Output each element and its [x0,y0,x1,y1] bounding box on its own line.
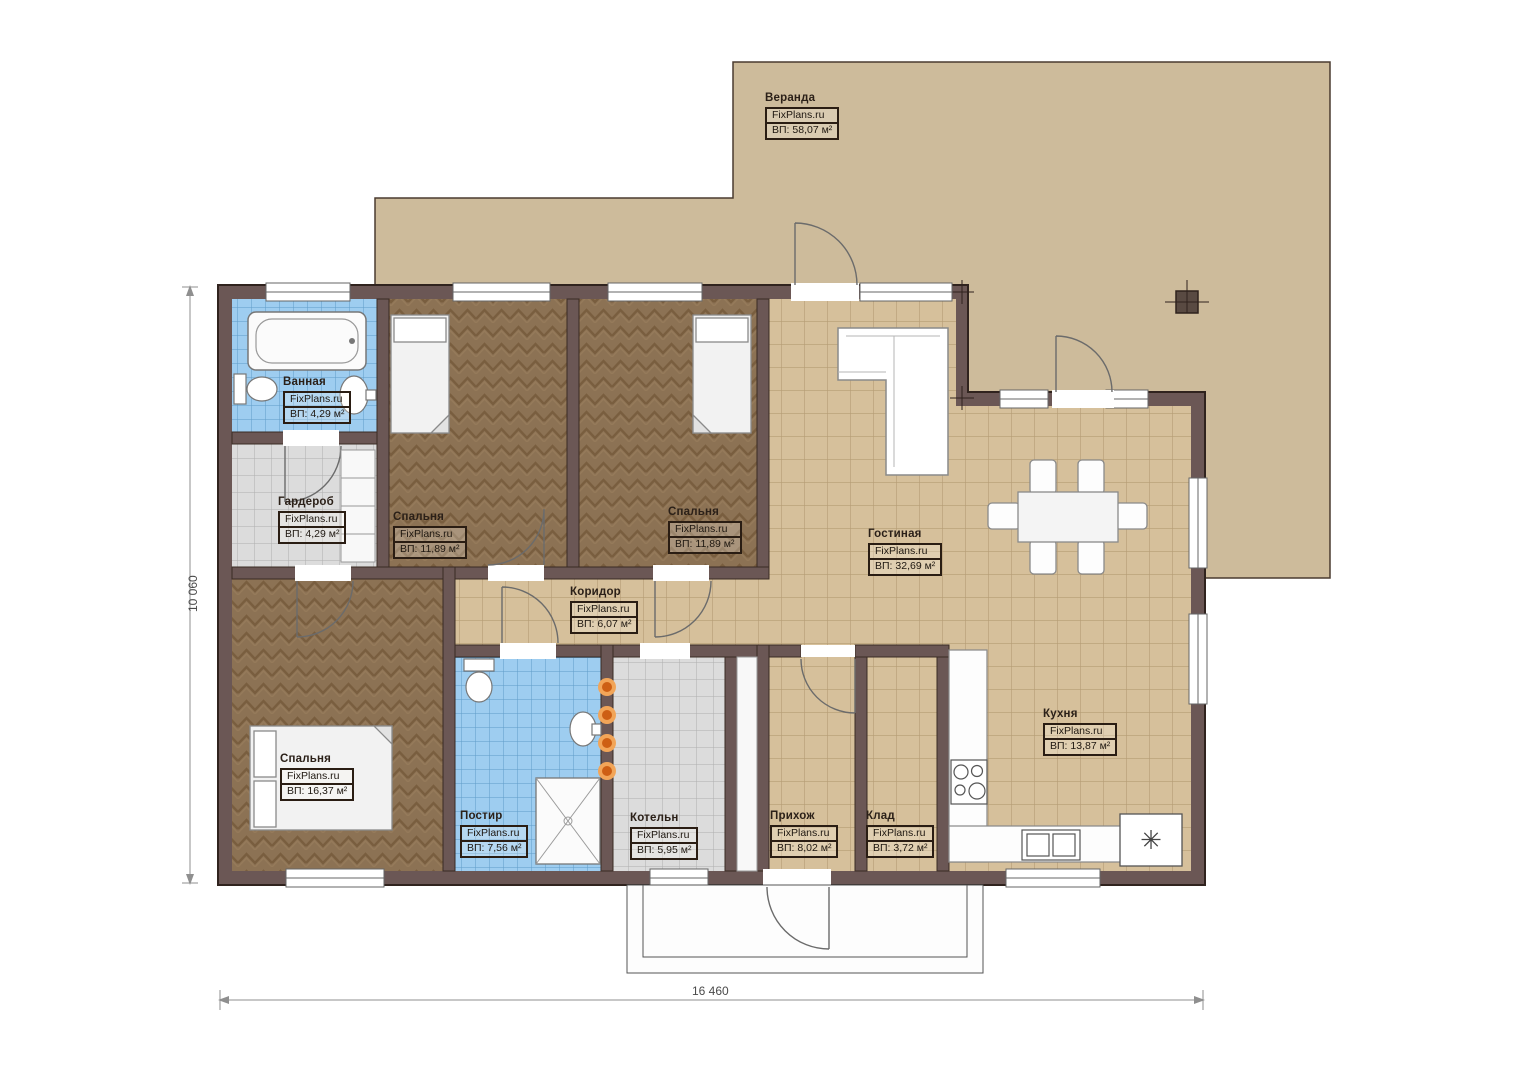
brand-watermark: FixPlans.ru [1045,725,1115,741]
brand-watermark: FixPlans.ru [632,829,696,845]
room-info-box: FixPlans.ru ВП: 8,02 м² [770,825,838,858]
room-info-box: FixPlans.ru ВП: 4,29 м² [283,391,351,424]
room-label-boiler: Котельн FixPlans.ru ВП: 5,95 м² [630,812,698,860]
room-area: ВП: 16,37 м² [282,785,352,799]
room-label-storage: Клад FixPlans.ru ВП: 3,72 м² [866,810,934,858]
room-area: ВП: 8,02 м² [772,842,836,856]
room-name: Ванная [283,376,351,389]
room-info-box: FixPlans.ru ВП: 5,95 м² [630,827,698,860]
fridge-icon: ✳ [1120,814,1182,866]
brand-watermark: FixPlans.ru [280,513,344,529]
brand-watermark: FixPlans.ru [670,523,740,539]
room-name: Кухня [1043,708,1117,721]
bed-icon-bedroom2 [693,315,751,433]
room-name: Спальня [280,753,354,766]
room-label-bathroom: Ванная FixPlans.ru ВП: 4,29 м² [283,376,351,424]
room-area: ВП: 13,87 м² [1045,740,1115,754]
room-info-box: FixPlans.ru ВП: 4,29 м² [278,511,346,544]
brand-watermark: FixPlans.ru [285,393,349,409]
brand-watermark: FixPlans.ru [868,827,932,843]
room-label-livingroom: Гостиная FixPlans.ru ВП: 32,69 м² [868,528,942,576]
room-info-box: FixPlans.ru ВП: 11,89 м² [668,521,742,554]
room-name: Клад [866,810,934,823]
kitchen-sink-icon [1022,830,1080,860]
room-name: Гардероб [278,496,346,509]
room-area: ВП: 4,29 м² [280,528,344,542]
room-area: ВП: 11,89 м² [395,543,465,557]
room-info-box: FixPlans.ru ВП: 6,07 м² [570,601,638,634]
room-info-box: FixPlans.ru ВП: 11,89 м² [393,526,467,559]
toilet-icon-bathroom [234,374,277,404]
room-area: ВП: 3,72 м² [868,842,932,856]
room-area: ВП: 58,07 м² [767,124,837,138]
room-area: ВП: 5,95 м² [632,844,696,858]
shower-icon [536,778,600,864]
room-label-kitchen: Кухня FixPlans.ru ВП: 13,87 м² [1043,708,1117,756]
brand-watermark: FixPlans.ru [772,827,836,843]
floor-plan-drawing: ✳ [0,0,1528,1080]
room-info-box: FixPlans.ru ВП: 3,72 м² [866,825,934,858]
room-label-bedroom1: Спальня FixPlans.ru ВП: 11,89 м² [393,511,467,559]
room-area: ВП: 7,56 м² [462,842,526,856]
room-info-box: FixPlans.ru ВП: 32,69 м² [868,543,942,576]
room-area: ВП: 11,89 м² [670,538,740,552]
floor-plan-page: ✳ Веранда FixPlans.ru ВП: 58,07 м² Ванна… [0,0,1528,1080]
room-name: Спальня [393,511,467,524]
room-name: Гостиная [868,528,942,541]
room-label-corridor: Коридор FixPlans.ru ВП: 6,07 м² [570,586,638,634]
freezer-icon: ✳ [1140,825,1162,855]
dimension-height-label: 10 060 [186,575,200,612]
closet-strip [737,657,757,871]
room-name: Котельн [630,812,698,825]
brand-watermark: FixPlans.ru [282,770,352,786]
room-name: Постир [460,810,528,823]
room-label-hallway: Прихож FixPlans.ru ВП: 8,02 м² [770,810,838,858]
entrance-porch [627,885,983,973]
brand-watermark: FixPlans.ru [395,528,465,544]
cooktop-icon [951,760,987,804]
room-info-box: FixPlans.ru ВП: 13,87 м² [1043,723,1117,756]
room-label-laundry: Постир FixPlans.ru ВП: 7,56 м² [460,810,528,858]
room-name: Прихож [770,810,838,823]
room-info-box: FixPlans.ru ВП: 58,07 м² [765,107,839,140]
bathtub-icon [248,312,366,370]
room-label-wardrobe: Гардероб FixPlans.ru ВП: 4,29 м² [278,496,346,544]
room-name: Спальня [668,506,742,519]
room-area: ВП: 6,07 м² [572,618,636,632]
brand-watermark: FixPlans.ru [870,545,940,561]
room-info-box: FixPlans.ru ВП: 16,37 м² [280,768,354,801]
bed-icon-bedroom1 [391,315,449,433]
room-info-box: FixPlans.ru ВП: 7,56 м² [460,825,528,858]
room-label-veranda: Веранда FixPlans.ru ВП: 58,07 м² [765,92,839,140]
room-area: ВП: 32,69 м² [870,560,940,574]
room-area: ВП: 4,29 м² [285,408,349,422]
dimension-width-label: 16 460 [692,984,729,998]
toilet-icon-laundry [464,659,494,702]
room-name: Веранда [765,92,839,105]
brand-watermark: FixPlans.ru [462,827,526,843]
room-name: Коридор [570,586,638,599]
brand-watermark: FixPlans.ru [572,603,636,619]
brand-watermark: FixPlans.ru [767,109,837,125]
room-label-bedroom2: Спальня FixPlans.ru ВП: 11,89 м² [668,506,742,554]
room-label-bedroom3: Спальня FixPlans.ru ВП: 16,37 м² [280,753,354,801]
